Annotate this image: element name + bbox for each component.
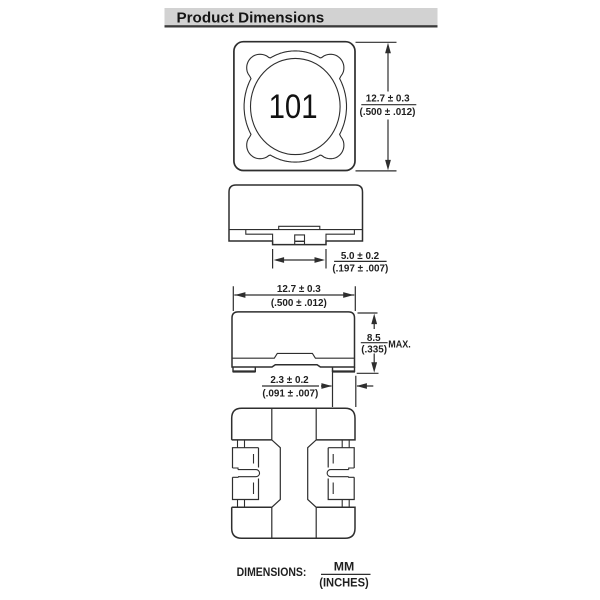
svg-text:MAX.: MAX. (388, 339, 411, 350)
svg-text:2.3 ± 0.2: 2.3 ± 0.2 (270, 375, 309, 386)
svg-text:MM: MM (334, 560, 355, 574)
svg-text:5.0 ± 0.2: 5.0 ± 0.2 (341, 251, 380, 262)
svg-text:(.335): (.335) (361, 344, 387, 355)
svg-text:Product Dimensions: Product Dimensions (177, 9, 325, 26)
svg-text:DIMENSIONS:: DIMENSIONS: (237, 565, 307, 579)
svg-text:12.7 ± 0.3: 12.7 ± 0.3 (366, 94, 410, 105)
svg-text:101: 101 (269, 88, 318, 126)
svg-text:(.197 ± .007): (.197 ± .007) (332, 264, 388, 275)
svg-text:12.7 ± 0.3: 12.7 ± 0.3 (277, 284, 321, 295)
svg-text:(.500 ± .012): (.500 ± .012) (271, 298, 327, 309)
svg-text:(.500 ± .012): (.500 ± .012) (360, 107, 416, 118)
svg-text:(.091 ± .007): (.091 ± .007) (262, 389, 318, 400)
svg-text:(INCHES): (INCHES) (319, 576, 369, 590)
